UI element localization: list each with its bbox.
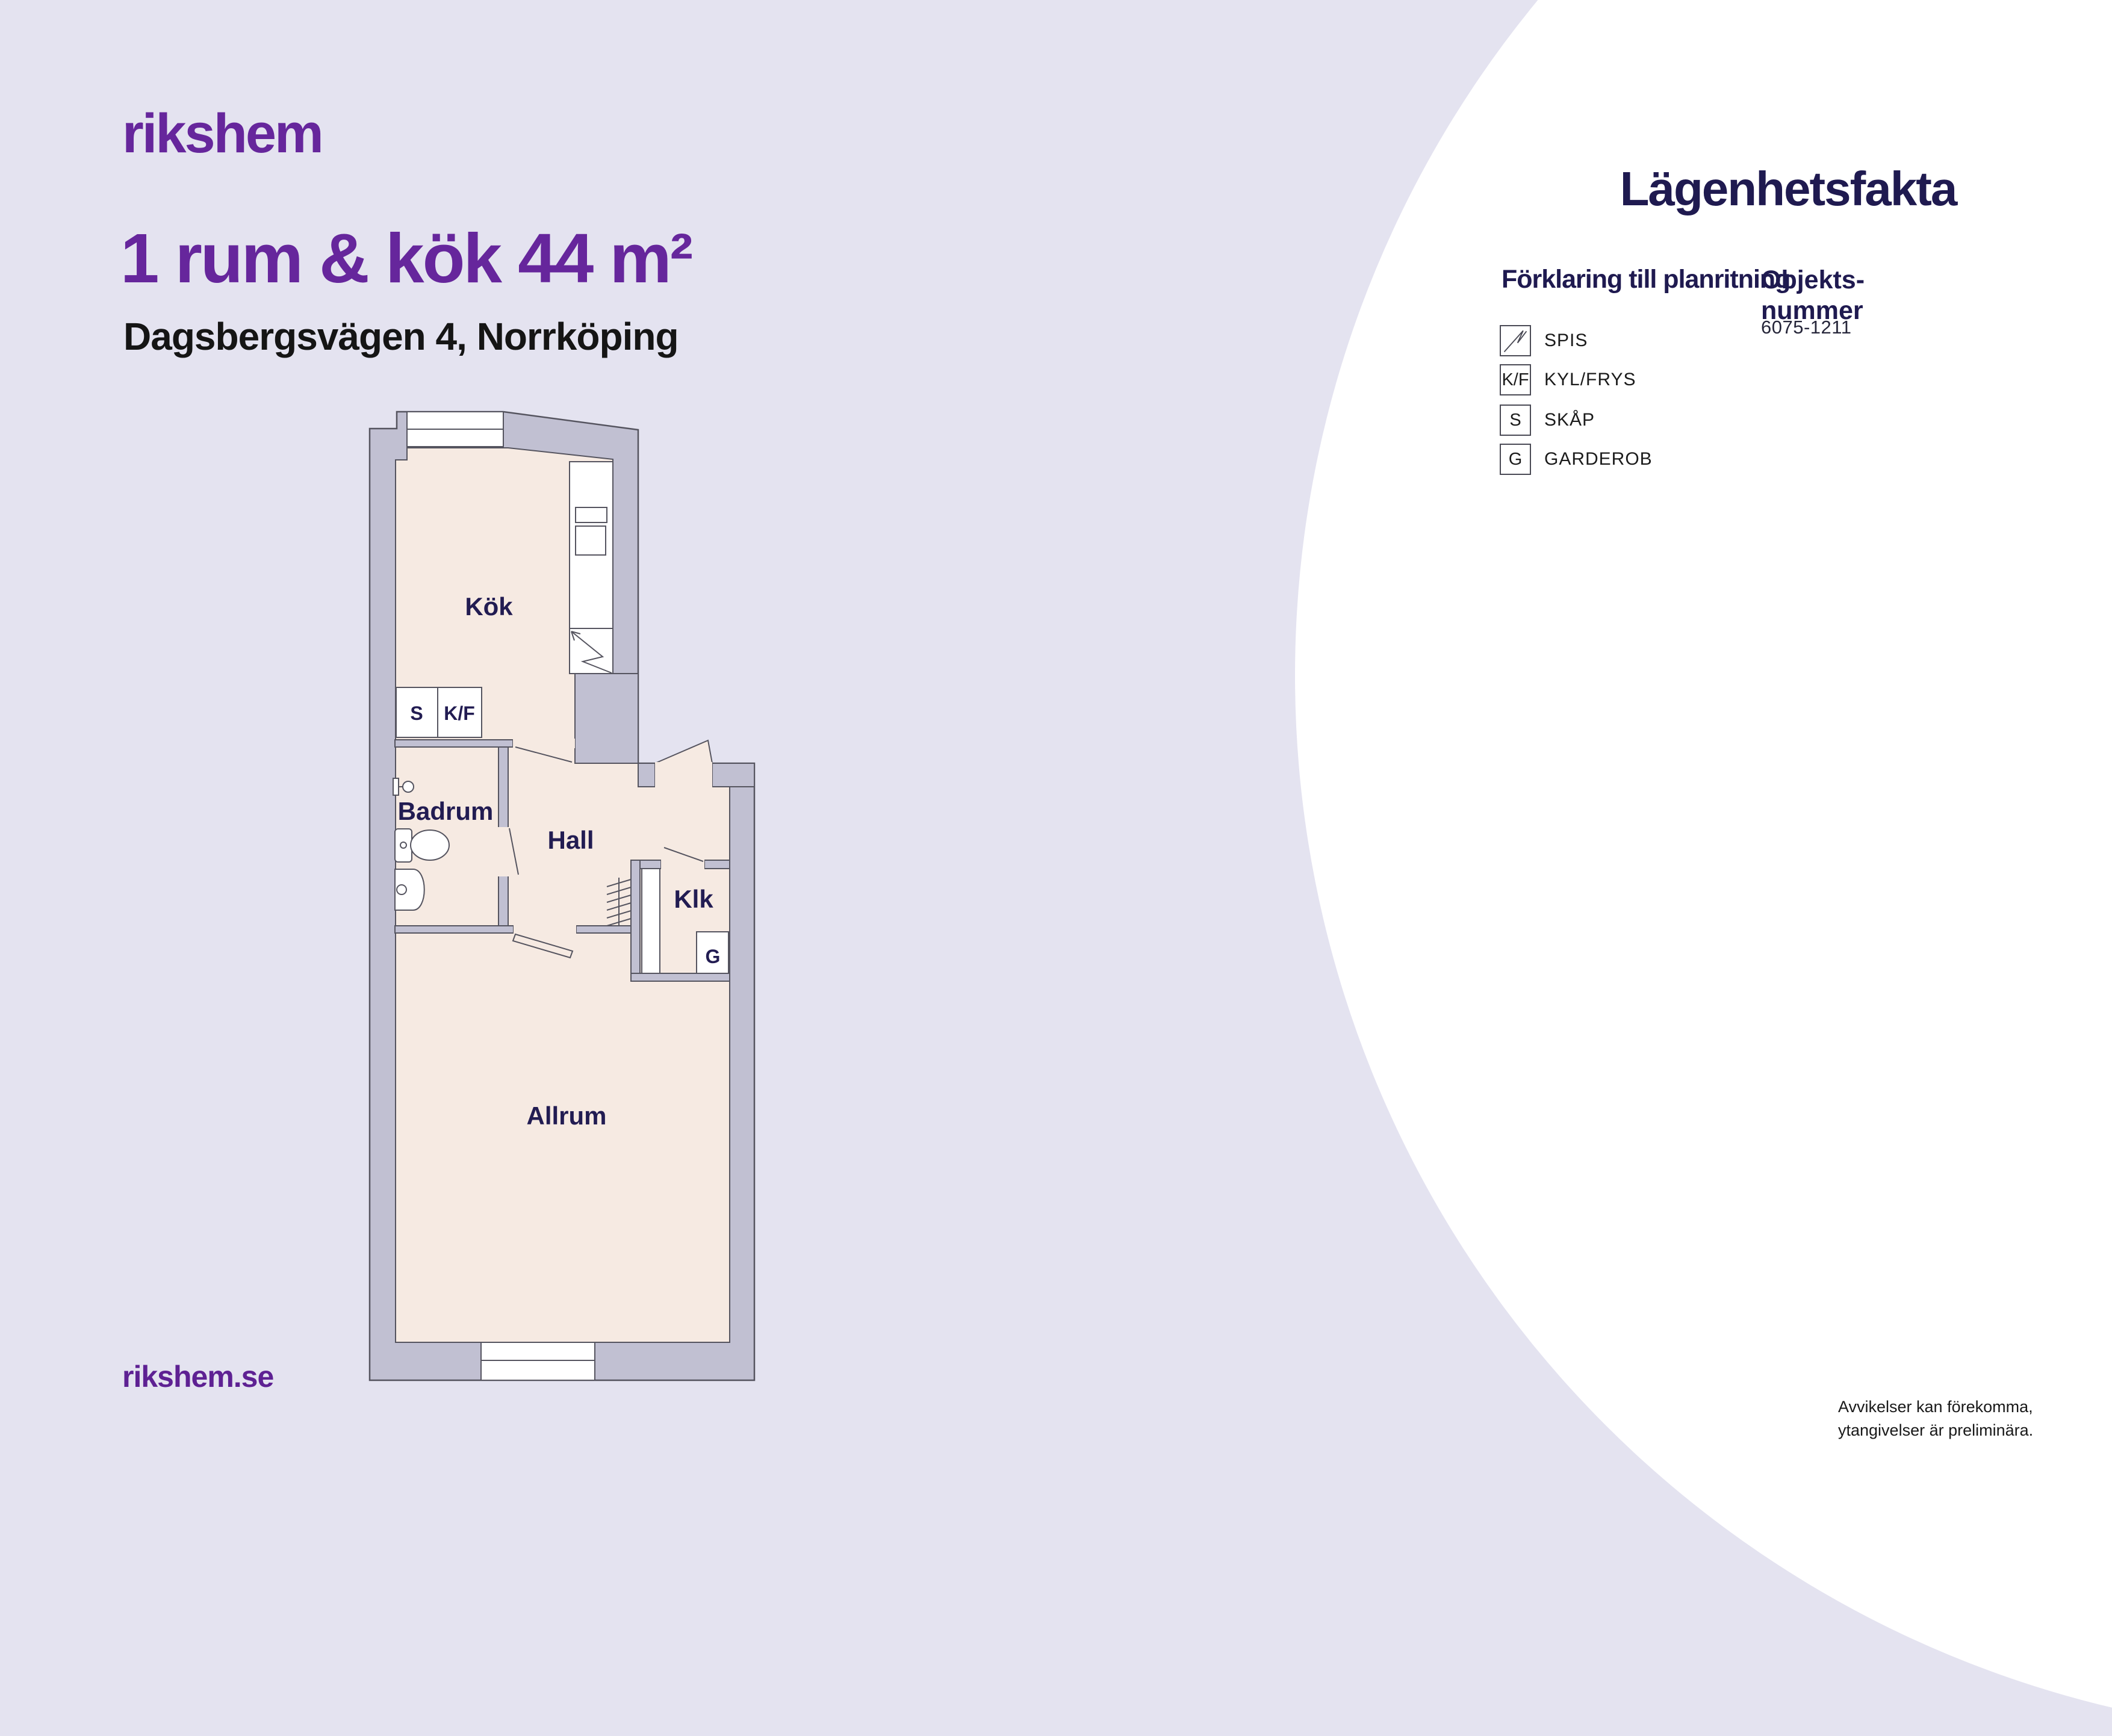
toilet-bowl: [411, 830, 449, 860]
label-cabinet: S: [410, 702, 423, 724]
wall-bath-hall-upper: [498, 747, 508, 828]
wall-bath-hall-lower: [498, 876, 508, 926]
fridge-symbol-box: K/F: [1500, 364, 1531, 395]
legend-row-kylfrys: K/F KYL/FRYS: [1500, 364, 1636, 395]
doorway-kitchen: [513, 739, 575, 748]
doorway-entry: [655, 762, 712, 788]
label-kitchen: Kök: [465, 592, 513, 621]
object-number-value: 6075-1211: [1761, 317, 1851, 338]
legend-row-skap: S SKÅP: [1500, 405, 1595, 436]
stove-zigzag-icon: [1501, 326, 1530, 355]
address-subtitle: Dagsbergsvägen 4, Norrköping: [123, 314, 679, 359]
doorway-closet: [661, 859, 704, 870]
label-closet: Klk: [674, 885, 713, 913]
wall-living-right: [576, 926, 631, 933]
website-link: rikshem.se: [122, 1359, 273, 1394]
room-living: [396, 933, 730, 1342]
wall-kitchen-bath: [395, 740, 513, 747]
label-wardrobe: G: [706, 946, 721, 967]
cabinet-symbol-box: S: [1500, 405, 1531, 436]
stove-symbol-box: [1500, 325, 1531, 356]
window-bottom: [481, 1342, 595, 1380]
wall-closet-left: [631, 860, 640, 981]
doorway-bathroom: [497, 827, 509, 876]
legend-label: KYL/FRYS: [1544, 370, 1636, 390]
bathroom-faucet-head: [403, 781, 414, 792]
disclaimer-line1: Avvikelser kan förekomma,: [1838, 1395, 2033, 1419]
label-bathroom: Badrum: [398, 797, 494, 825]
entry-door-leaf: [655, 740, 712, 763]
object-number-label-line1: Objekts-: [1761, 265, 1865, 296]
doorway-living: [514, 925, 576, 934]
closet-door-strip: [642, 869, 660, 973]
wardrobe-symbol-box: G: [1500, 444, 1531, 475]
bathroom-faucet: [393, 778, 399, 795]
wall-kitchen-se-block: [575, 674, 638, 763]
legend-heading: Förklaring till planritning: [1502, 265, 1790, 294]
legend-row-spis: SPIS: [1500, 325, 1588, 356]
label-living: Allrum: [526, 1102, 606, 1130]
legend-label: SKÅP: [1544, 410, 1595, 430]
wall-closet-top-left: [640, 860, 661, 869]
facts-panel-circle: [1295, 0, 2112, 1736]
legend-label: SPIS: [1544, 330, 1588, 351]
kitchen-sink-small: [576, 507, 607, 522]
label-hall: Hall: [547, 826, 594, 854]
rikshem-logo: rikshem: [122, 102, 322, 166]
bathroom-sink: [395, 869, 424, 910]
wall-closet-top-right: [704, 860, 730, 869]
label-fridge: K/F: [444, 702, 475, 724]
wall-closet-bottom: [631, 973, 730, 981]
disclaimer-line2: ytangivelser är preliminära.: [1838, 1419, 2033, 1442]
wall-living-left: [395, 926, 514, 933]
floorplan: Kök Badrum Hall Klk Allrum S K/F G: [337, 385, 795, 1409]
legend-label: GARDEROB: [1544, 449, 1653, 470]
wall-entry-left: [638, 763, 655, 787]
page-title: 1 rum & kök 44 m²: [120, 218, 691, 299]
disclaimer-text: Avvikelser kan förekomma, ytangivelser ä…: [1838, 1395, 2033, 1442]
legend-row-garderob: G GARDEROB: [1500, 444, 1653, 475]
facts-heading: Lägenhetsfakta: [1595, 161, 1981, 217]
wall-entry-right: [712, 763, 754, 787]
toilet-tank: [395, 829, 412, 862]
kitchen-sink-large: [576, 526, 606, 555]
